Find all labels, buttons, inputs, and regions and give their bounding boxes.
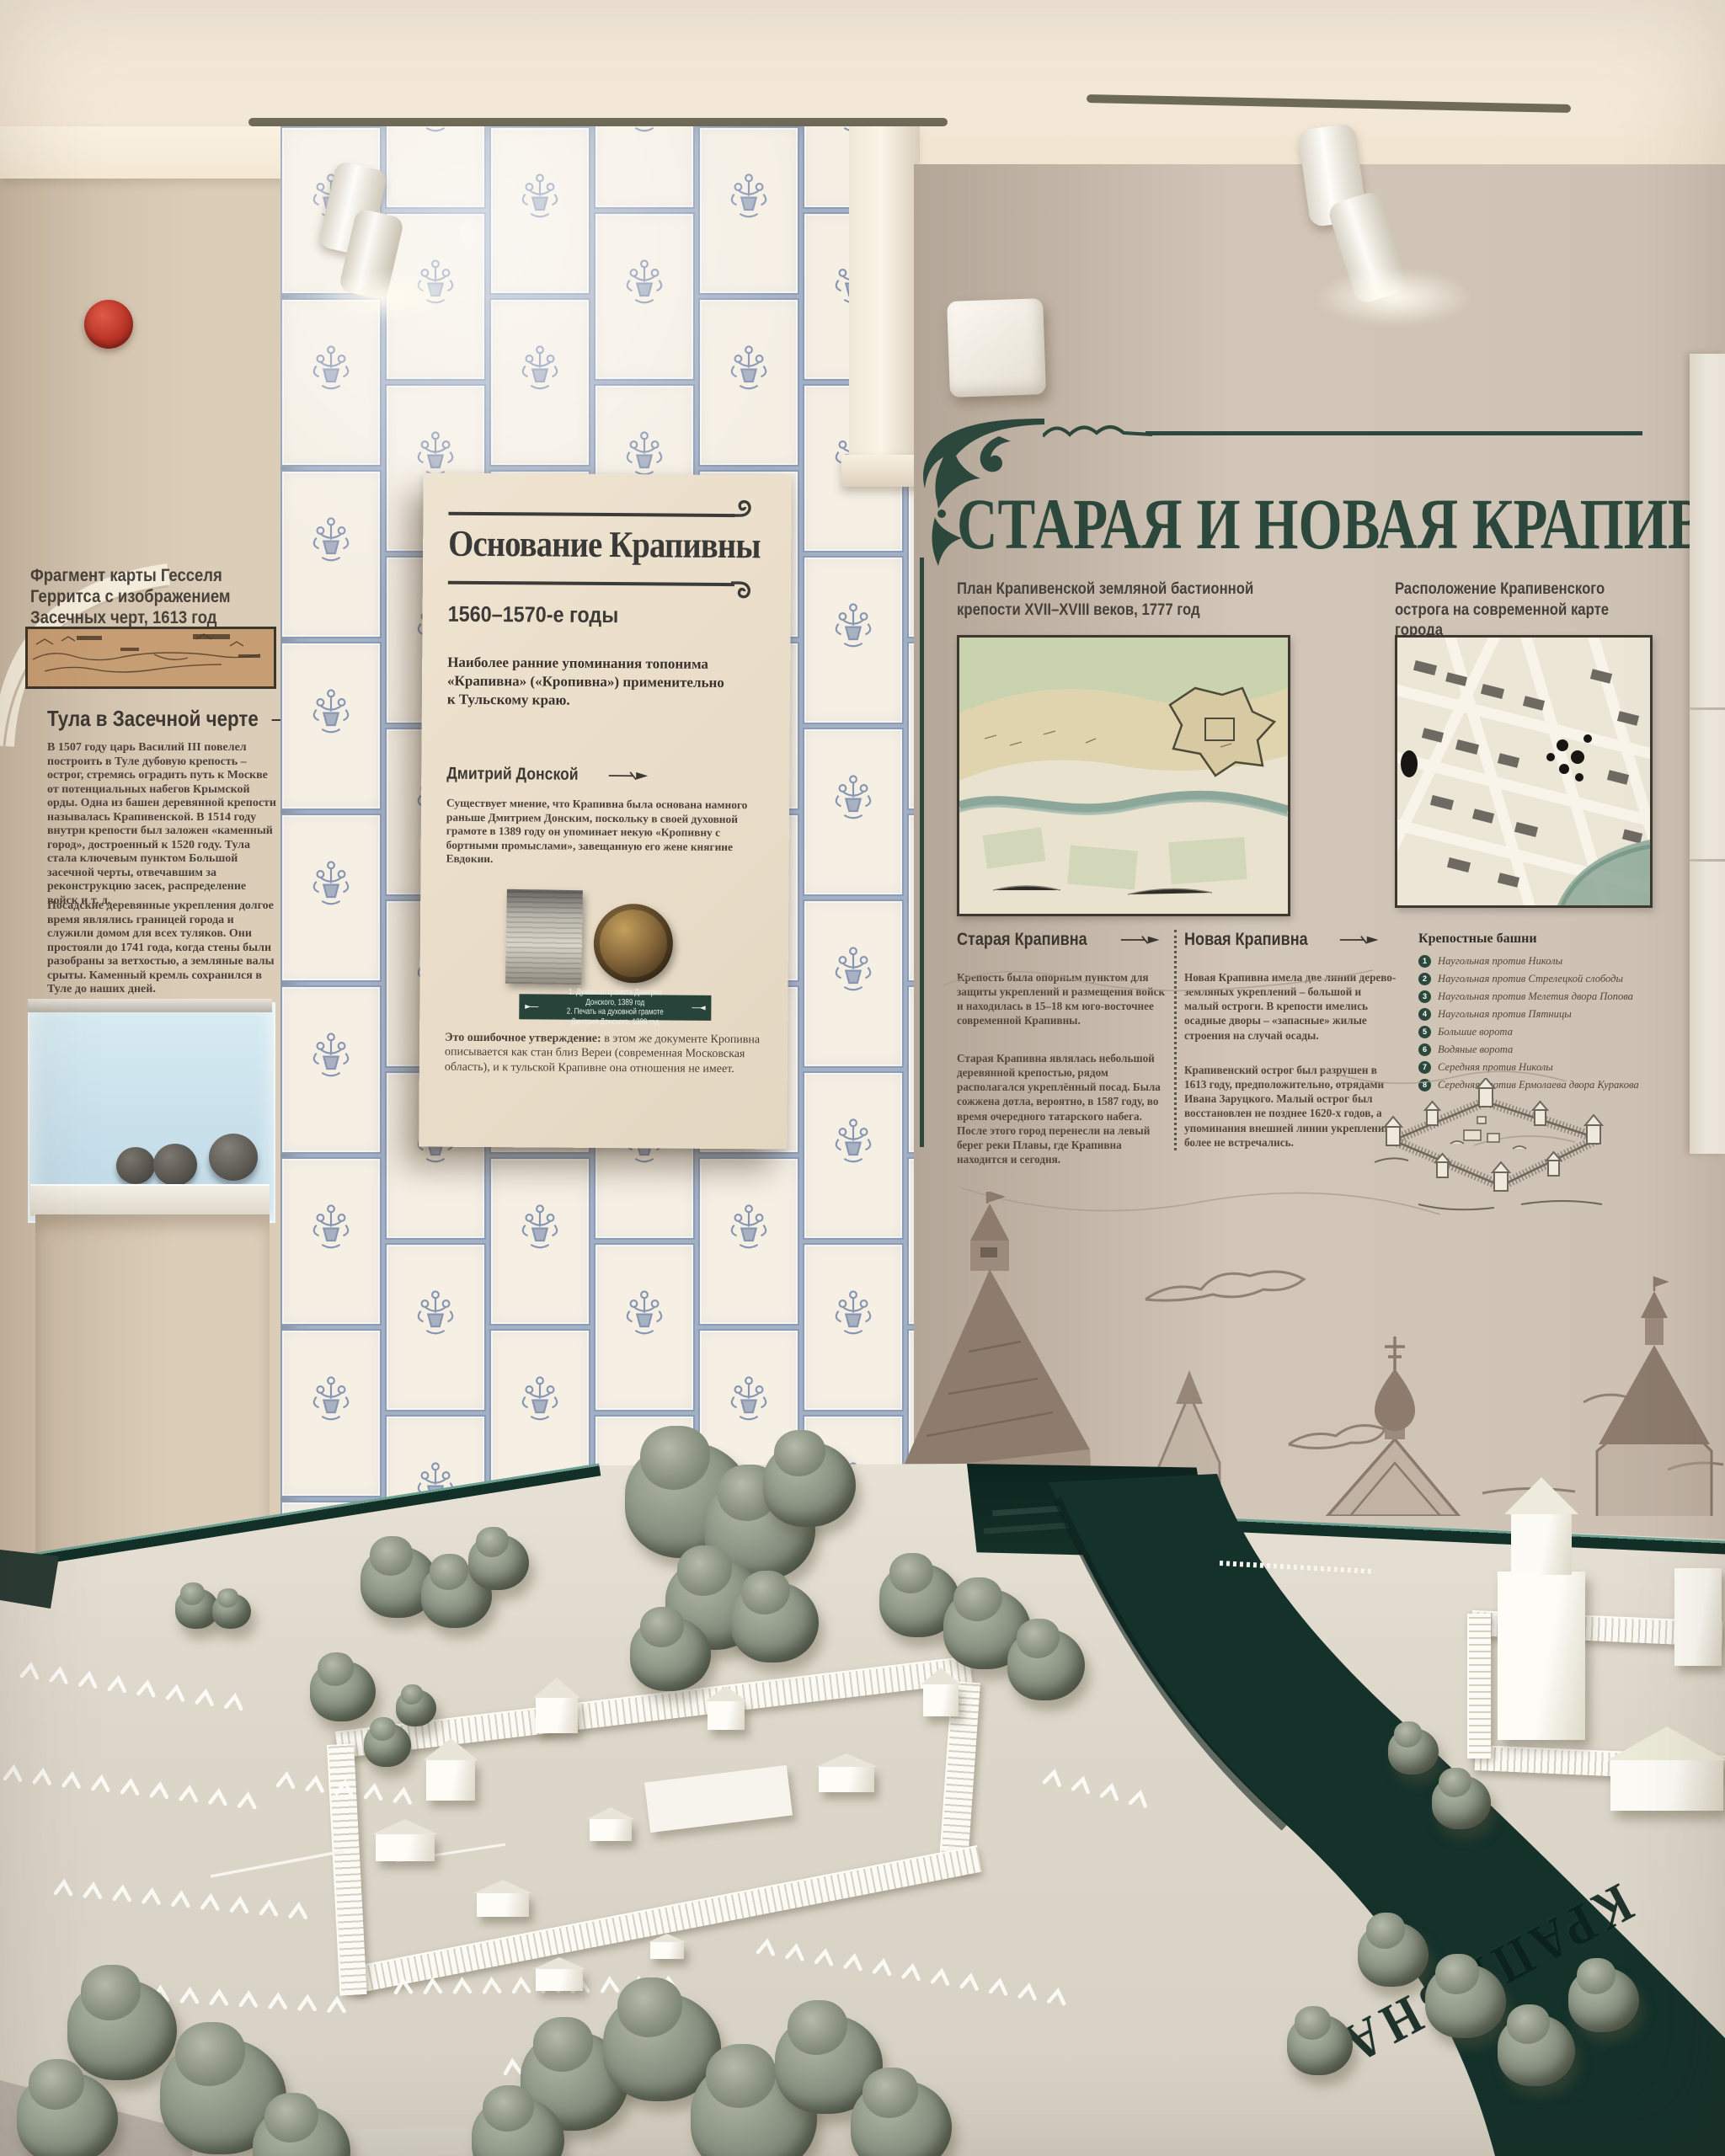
artifact-caption-strip: 1. Духовная грамота Дмитрия Донского, 13… — [519, 994, 711, 1021]
wall-tile — [594, 126, 695, 209]
left-panel-heading-label: Тула в Засечной черте — [47, 706, 259, 731]
model-building — [536, 1957, 583, 1991]
legend-number-badge: 1 — [1418, 955, 1431, 968]
left-panel-caption: Фрагмент карты Гесселя Герритса с изобра… — [30, 566, 253, 628]
footnote-bold: Это ошибочное утверждение: — [445, 1032, 601, 1045]
model-tree — [1358, 1922, 1429, 1987]
left-panel-paragraph-2: Посадские деревянные укрепления долгое в… — [47, 899, 280, 997]
cannonball-1 — [116, 1147, 155, 1184]
model-tree — [1498, 2015, 1575, 2086]
wall-tile — [280, 985, 382, 1154]
wall-tile — [385, 126, 486, 209]
spotlight-right-glow — [1314, 268, 1474, 327]
model-building — [923, 1668, 959, 1716]
legend-item-label: Наугольная против Мелетия двора Попова — [1438, 990, 1633, 1003]
adjacent-display-panel — [1690, 354, 1725, 1154]
wall-tile — [385, 1243, 486, 1412]
rule-curl-bottom-icon — [731, 578, 753, 600]
panel-border-top — [1146, 431, 1642, 435]
model-tree — [1425, 1964, 1506, 2038]
legend-number-badge: 2 — [1418, 973, 1431, 985]
spotlight-left-glow — [313, 269, 457, 323]
caption-arrow-right-icon — [692, 1005, 706, 1011]
model-tree — [212, 1593, 251, 1629]
wall-speaker-device — [947, 298, 1046, 398]
model-tree — [396, 1689, 436, 1726]
wall-pilaster — [849, 126, 920, 483]
legend-number-badge: 6 — [1418, 1043, 1431, 1056]
cannonball-2 — [153, 1144, 197, 1186]
legend-number-badge: 4 — [1418, 1008, 1431, 1021]
center-panel-section-heading: Дмитрий Донской — [446, 765, 651, 786]
wall-tile — [907, 470, 914, 638]
legend-item-label: Наугольная против Стрелецкой слободы — [1438, 973, 1623, 985]
right-fort-church — [1498, 1479, 1585, 1740]
model-tree — [1568, 1967, 1639, 2032]
model-building — [650, 1934, 684, 1959]
model-building — [426, 1738, 475, 1801]
legend-item-label: Наугольная против Пятницы — [1438, 1008, 1572, 1021]
right-panel-title: СТАРАЯ И НОВАЯ КРАПИВНА — [957, 482, 1725, 566]
legend-item-label: Середняя против Николы — [1438, 1061, 1553, 1074]
model-tree — [1007, 1629, 1085, 1700]
wall-tile — [803, 1071, 904, 1240]
new-krapivna-paragraph-1: Новая Крапивна имела две линии дерево-зе… — [1184, 970, 1397, 1043]
legend-item: 1 Наугольная против Николы — [1418, 955, 1663, 968]
wall-tile — [280, 470, 382, 638]
light-track-left — [248, 118, 948, 126]
legend-item: 3 Наугольная против Мелетия двора Попова — [1418, 990, 1663, 1003]
cannonball-3 — [209, 1134, 258, 1181]
legend-item: 6 Водяные ворота — [1418, 1043, 1663, 1056]
model-tree — [1287, 2015, 1353, 2075]
legend-number-badge: 7 — [1418, 1061, 1431, 1074]
model-tree — [1432, 1775, 1491, 1829]
legend-item: 5 Большие ворота — [1418, 1026, 1663, 1038]
heading-arrow-icon — [1120, 934, 1162, 946]
new-krapivna-heading: Новая Крапивна — [1184, 930, 1381, 950]
right-fort-block — [1674, 1568, 1722, 1666]
old-krapivna-paragraph-2: Старая Крапивна являлась небольшой дерев… — [957, 1051, 1167, 1166]
fire-alarm — [84, 300, 133, 349]
wall-tile — [907, 642, 914, 810]
model-building — [590, 1807, 632, 1841]
old-krapivna-paragraph-1: Крепость была опорным пунктом для защиты… — [957, 970, 1167, 1028]
model-tree — [468, 1534, 529, 1590]
left-map-caption: План Крапивенской земляной бастионной кр… — [957, 579, 1275, 621]
wall-tile — [907, 814, 914, 982]
wall-tile — [698, 1157, 799, 1326]
new-krapivna-paragraph-2: Крапивенский острог был разрушен в 1613 … — [1184, 1063, 1397, 1150]
old-krapivna-heading: Старая Крапивна — [957, 930, 1162, 950]
wall-tile — [489, 126, 590, 295]
center-panel-title: Основание Крапивны — [448, 522, 803, 568]
panel-border-left — [920, 558, 924, 1147]
model-building — [376, 1819, 435, 1861]
legend-item-label: Наугольная против Николы — [1438, 955, 1562, 968]
center-panel-footnote: Это ошибочное утверждение: в этом же док… — [445, 1031, 770, 1077]
wall-tile — [803, 899, 904, 1068]
ducal-seal-image — [594, 904, 674, 984]
wall-tile — [803, 728, 904, 896]
rule-curl-top-icon — [731, 499, 753, 520]
legend-title: Крепостные башни — [1418, 931, 1537, 947]
model-tree — [630, 1617, 711, 1691]
center-info-panel: Основание Крапивны 1560–1570-е годы Наиб… — [419, 472, 792, 1149]
legend-item: 4 Наугольная против Пятницы — [1418, 1008, 1663, 1021]
model-building — [477, 1880, 529, 1917]
legend-item-label: Большие ворота — [1438, 1026, 1513, 1038]
modern-city-map — [1395, 635, 1653, 908]
legend-item: 7 Середняя против Николы — [1418, 1061, 1663, 1074]
model-tree — [731, 1582, 819, 1662]
center-panel-subtitle: 1560–1570-е годы — [448, 601, 638, 629]
model-tree — [67, 1979, 177, 2080]
model-tree — [763, 1442, 856, 1527]
wall-pilaster-cap — [841, 455, 926, 487]
wall-tile — [280, 1157, 382, 1326]
title-rule-top — [448, 512, 734, 517]
legend-number-badge: 3 — [1418, 990, 1431, 1003]
wall-tile — [698, 298, 799, 467]
caption-arrow-left-icon — [524, 1003, 538, 1010]
column-divider — [1174, 930, 1177, 1150]
model-building — [708, 1686, 745, 1730]
title-rule-bottom — [448, 581, 734, 586]
wall-tile — [698, 126, 799, 295]
artifact-caption-line2: 2. Печать на духовной грамоте Дмитрия До… — [553, 1007, 676, 1027]
wall-tile — [594, 212, 695, 381]
wall-tile — [280, 642, 382, 810]
charter-document-image — [505, 889, 583, 985]
bastion-fortress-plan-map — [957, 635, 1290, 916]
heading-arrow-icon — [1339, 934, 1381, 946]
model-building — [536, 1678, 578, 1733]
center-panel-body: Существует мнение, что Крапивна была осн… — [446, 797, 767, 869]
display-case-shelf — [30, 1184, 270, 1216]
hessel-gerritsz-map-image — [25, 627, 276, 689]
wall-tile — [489, 1157, 590, 1326]
legend-item: 2 Наугольная против Стрелецкой слободы — [1418, 973, 1663, 985]
right-fort-house — [1610, 1726, 1723, 1811]
right-fort-palisade-side — [1467, 1614, 1491, 1758]
model-building — [819, 1753, 874, 1792]
artifact-caption-line1: 1. Духовная грамота Дмитрия Донского, 13… — [554, 988, 677, 1008]
wall-tile — [280, 298, 382, 467]
legend-number-badge: 5 — [1418, 1026, 1431, 1038]
legend-item-label: Водяные ворота — [1438, 1043, 1513, 1056]
panel-border-ornament — [1043, 419, 1152, 441]
model-tree — [1388, 1728, 1439, 1774]
wall-tile — [594, 1243, 695, 1412]
left-panel-heading: Тула в Засечной черте — [47, 706, 250, 732]
wall-tile — [489, 298, 590, 467]
fortress-towers-legend: 1 Наугольная против Николы 2 Наугольная … — [1418, 955, 1663, 1091]
wall-tile — [280, 814, 382, 982]
model-tree — [310, 1661, 376, 1721]
wall-tile — [803, 556, 904, 724]
center-panel-lead: Наиболее ранние упоминания топонима «Кра… — [447, 654, 725, 712]
display-case-top-bar — [28, 999, 272, 1012]
model-tree — [364, 1723, 411, 1767]
left-panel-paragraph-1: В 1507 году царь Василий III повелел пос… — [47, 741, 280, 908]
wall-tile — [907, 985, 914, 1154]
heading-arrow-icon — [607, 770, 651, 782]
museum-exhibit-photo: Фрагмент карты Гесселя Герритса с изобра… — [0, 0, 1725, 2156]
right-map-caption: Расположение Крапивенского острога на со… — [1395, 579, 1639, 642]
wall-tile — [803, 1243, 904, 1412]
